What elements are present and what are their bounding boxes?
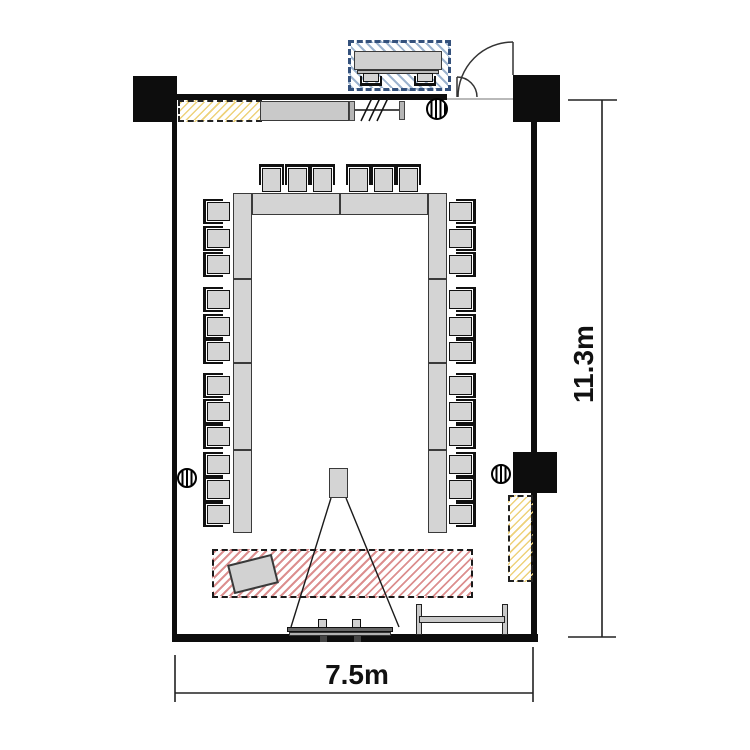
floor-plan: 11.3m 7.5m	[0, 0, 750, 750]
projection-beam-icon	[291, 498, 399, 627]
line-art-layer	[0, 0, 750, 750]
room-width-label: 7.5m	[307, 660, 407, 690]
partition-slash-icon	[355, 98, 399, 121]
room-height-label: 11.3m	[569, 324, 599, 404]
door-swing-icon	[457, 42, 513, 97]
